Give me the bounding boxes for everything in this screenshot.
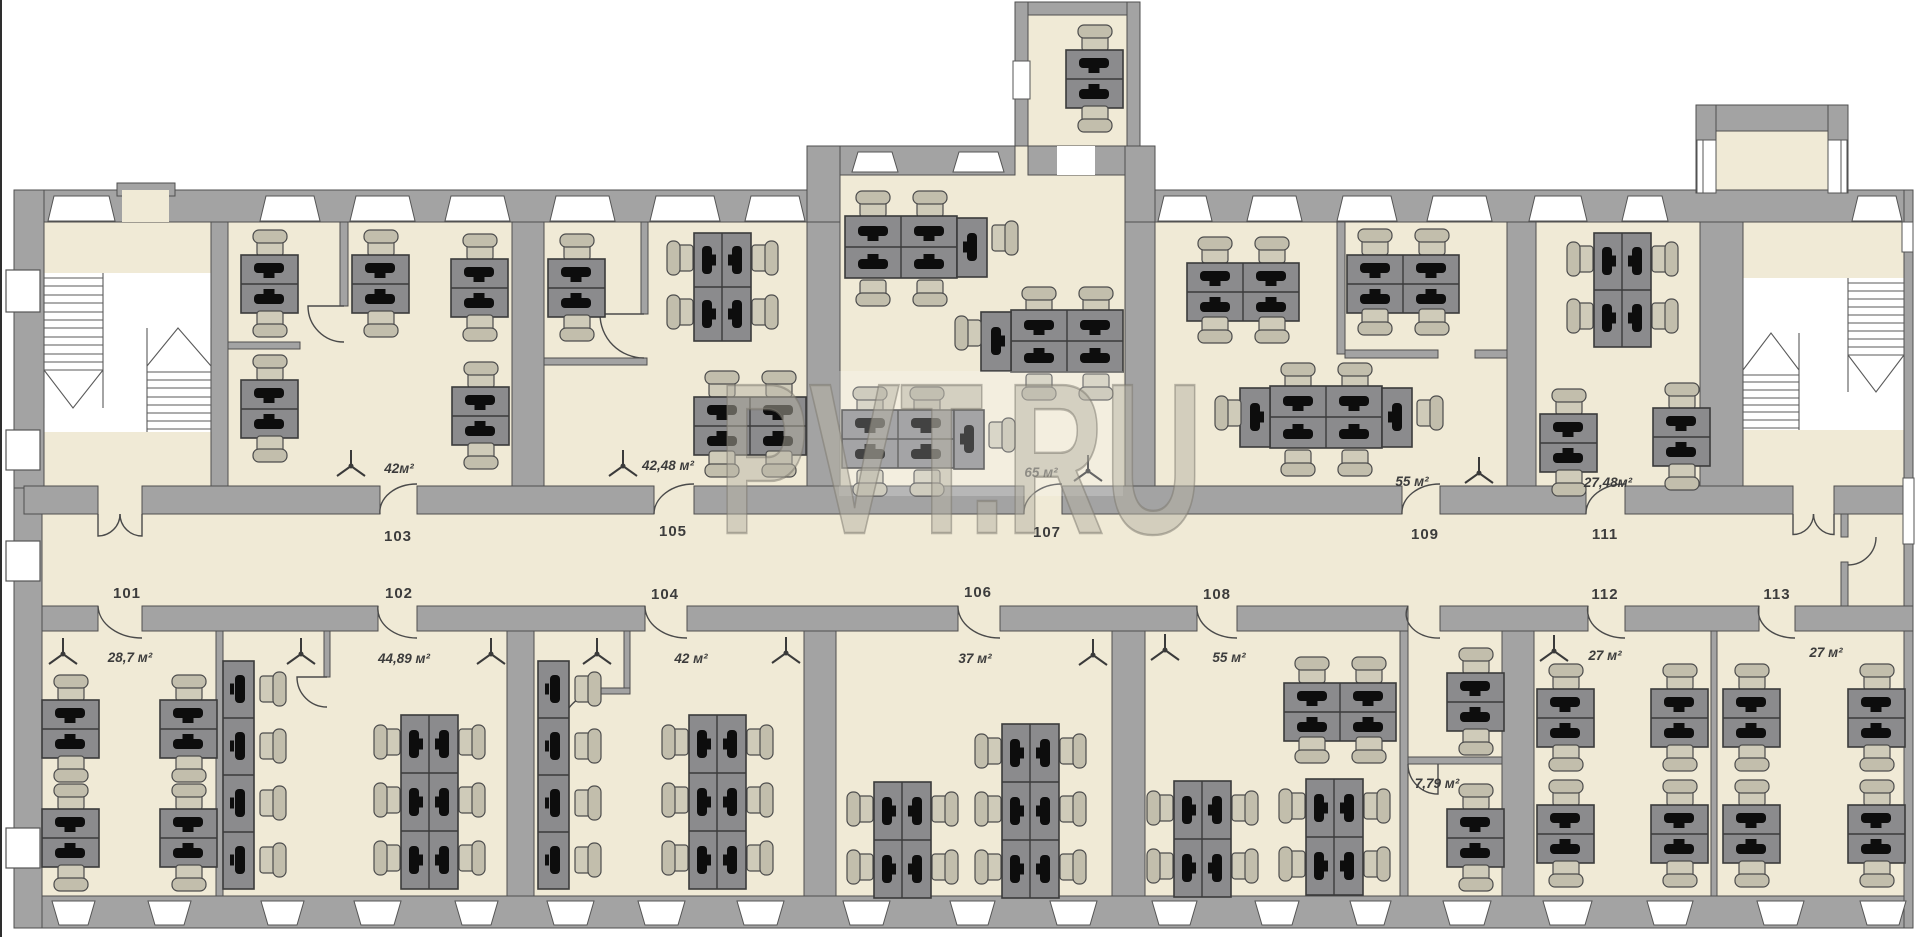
- svg-text:28,7 м²: 28,7 м²: [107, 650, 153, 665]
- svg-text:PVT.RU: PVT.RU: [718, 338, 1203, 579]
- svg-text:55 м²: 55 м²: [1212, 650, 1246, 665]
- svg-text:102: 102: [385, 585, 413, 602]
- svg-text:103: 103: [384, 528, 412, 545]
- svg-text:42м²: 42м²: [383, 461, 414, 476]
- svg-text:109: 109: [1411, 526, 1439, 543]
- svg-text:55 м²: 55 м²: [1395, 474, 1429, 489]
- svg-text:42,48 м²: 42,48 м²: [641, 458, 695, 473]
- svg-text:27 м²: 27 м²: [1808, 645, 1843, 660]
- svg-text:108: 108: [1203, 586, 1231, 603]
- svg-text:113: 113: [1763, 586, 1790, 603]
- svg-text:42 м²: 42 м²: [673, 651, 708, 666]
- svg-text:104: 104: [651, 586, 679, 603]
- svg-text:112: 112: [1591, 586, 1618, 603]
- svg-text:111: 111: [1592, 526, 1618, 543]
- svg-text:44,89 м²: 44,89 м²: [377, 651, 431, 666]
- svg-text:27,48м²: 27,48м²: [1583, 475, 1633, 490]
- svg-text:105: 105: [659, 523, 687, 540]
- svg-text:106: 106: [964, 584, 992, 601]
- svg-text:37 м²: 37 м²: [958, 651, 992, 666]
- svg-text:7,79 м²: 7,79 м²: [1415, 776, 1460, 791]
- svg-text:101: 101: [113, 585, 141, 602]
- svg-text:27 м²: 27 м²: [1587, 648, 1622, 663]
